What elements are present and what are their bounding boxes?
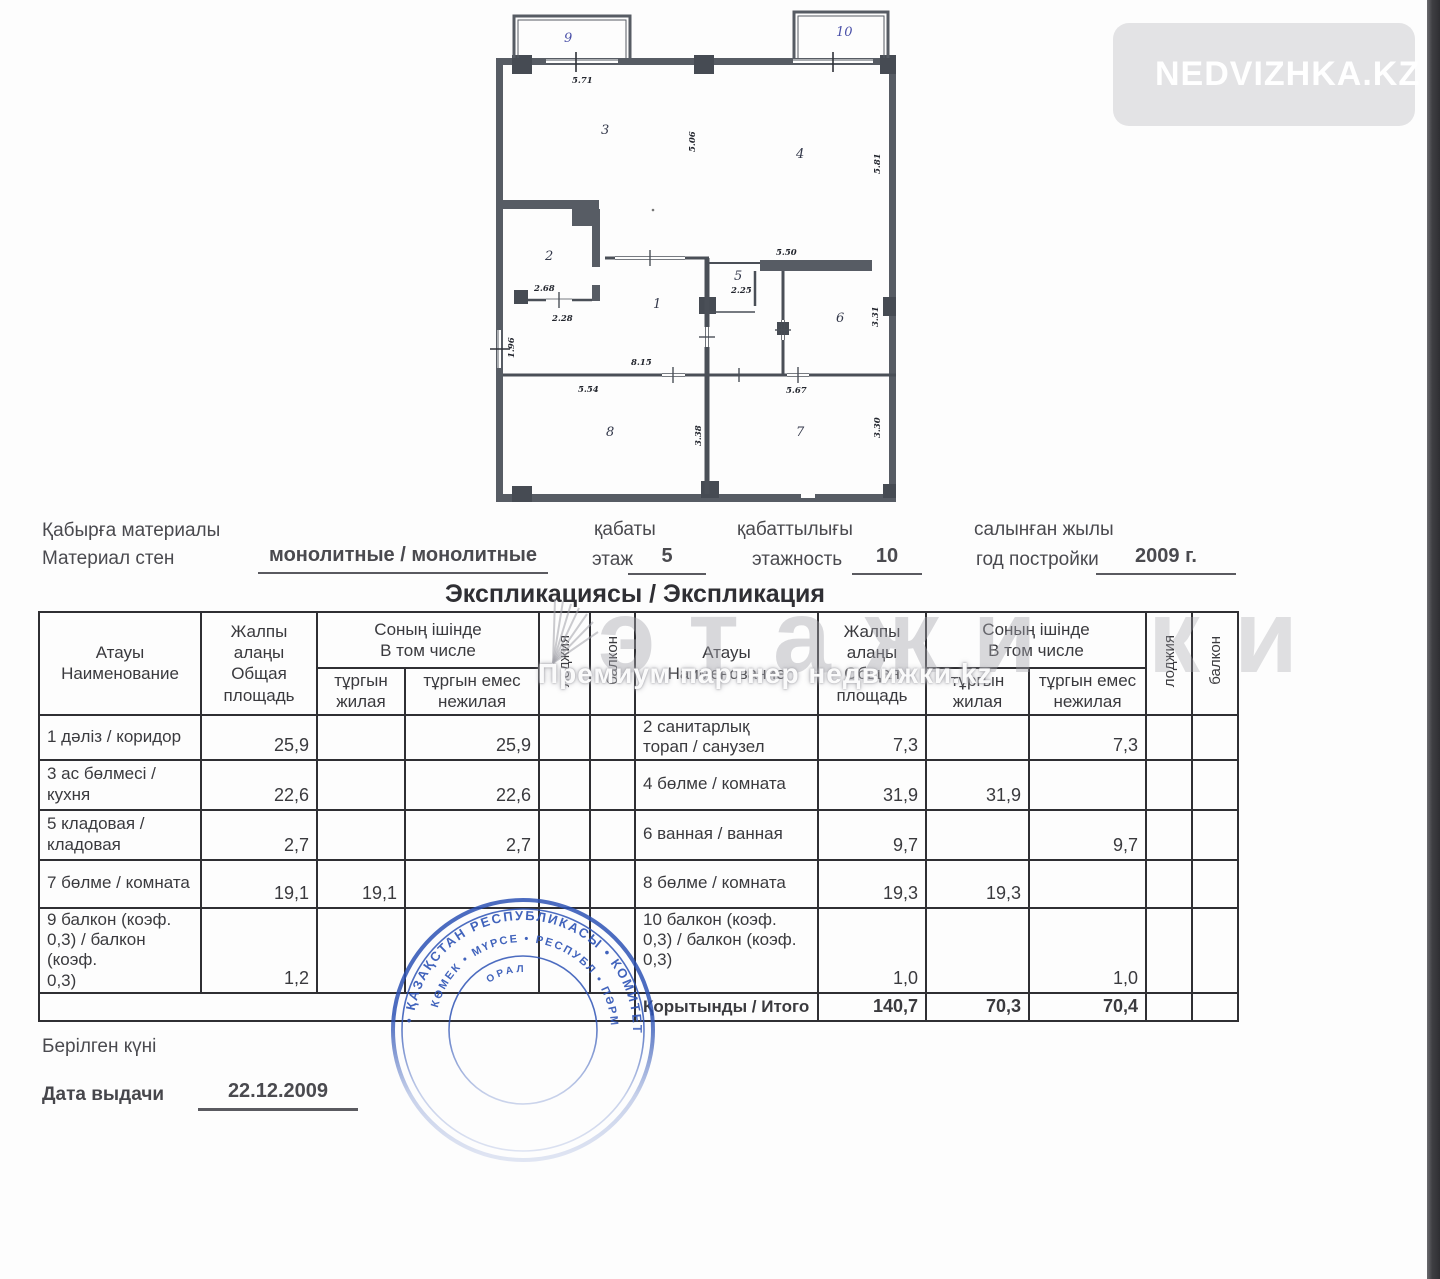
dim-5-81: 5.81 bbox=[873, 153, 883, 174]
floor-label-kk: қабаты bbox=[594, 519, 656, 541]
col-header-nonliving-right: тұргын емес нежилая bbox=[1029, 668, 1146, 715]
issue-date-label-kk: Берілген күні bbox=[42, 1036, 156, 1058]
logo-text: NEDVIZHKA.KZ bbox=[1155, 55, 1420, 94]
floor-value: 5 bbox=[628, 545, 706, 575]
col-header-loggia-left: лоджия bbox=[539, 612, 590, 715]
room-label-8: 8 bbox=[606, 425, 614, 440]
wall-material-value: монолитные / монолитные bbox=[258, 544, 548, 574]
interior-walls bbox=[503, 250, 896, 494]
room-label-5: 5 bbox=[734, 269, 742, 284]
floor-plan: 9 10 3 4 2 1 5 6 8 7 5.71 5.06 5.81 5.50… bbox=[488, 2, 908, 514]
dim-2-28: 2.28 bbox=[551, 314, 573, 324]
dim-1-96: 1.96 bbox=[507, 337, 517, 358]
photo-edge-strip bbox=[1427, 0, 1440, 1279]
col-header-total-right: Жалпы алаңы Общая площадь bbox=[818, 612, 926, 715]
col-header-name-left: Атауы Наименование bbox=[39, 612, 201, 715]
dim-5-06: 5.06 bbox=[688, 131, 698, 152]
storeys-label-kk: қабаттылығы bbox=[737, 519, 853, 541]
room-label-2: 2 bbox=[544, 249, 553, 264]
col-header-balcony-left: балкон bbox=[590, 612, 635, 715]
wall-material-label-ru: Материал стен bbox=[42, 548, 174, 570]
room-label-3: 3 bbox=[601, 123, 609, 138]
room-label-7: 7 bbox=[796, 425, 805, 440]
year-label-kk: салынған жылы bbox=[974, 519, 1114, 541]
storeys-value: 10 bbox=[852, 545, 922, 575]
col-header-name-right: Атауы Наименование bbox=[635, 612, 818, 715]
floor-label-ru: этаж bbox=[592, 549, 633, 571]
col-header-living-right: тұргын жилая bbox=[926, 668, 1029, 715]
windows bbox=[490, 52, 873, 368]
total-row: Қорытынды / Итого 140,7 70,3 70,4 bbox=[39, 993, 1238, 1021]
document-page: NEDVIZHKA.KZ bbox=[0, 0, 1440, 1279]
dim-2-25: 2.25 bbox=[730, 286, 752, 296]
table-row: 5 кладовая / кладовая 2,7 2,7 6 ванная /… bbox=[39, 810, 1238, 860]
table-row: 3 ас бөлмесі / кухня 22,6 22,6 4 бөлме /… bbox=[39, 760, 1238, 810]
dim-3-38: 3.38 bbox=[694, 425, 704, 446]
room-label-9: 9 bbox=[564, 31, 572, 46]
wall-posts bbox=[512, 55, 896, 502]
col-header-nonliving-left: тұргын емес нежилая bbox=[405, 668, 539, 715]
table-row: 1 дәліз / коридор 25,9 25,9 2 санитарлық… bbox=[39, 715, 1238, 760]
room-label-4: 4 bbox=[795, 147, 804, 162]
year-value: 2009 г. bbox=[1096, 545, 1236, 575]
room-label-6: 6 bbox=[836, 311, 844, 326]
dim-5-54: 5.54 bbox=[578, 385, 599, 395]
room-labels: 9 10 3 4 2 1 5 6 8 7 bbox=[544, 25, 853, 440]
col-header-including-left: Соның ішінде В том числе bbox=[317, 612, 539, 668]
dim-3-31: 3.31 bbox=[871, 306, 881, 327]
dim-8-15: 8.15 bbox=[631, 358, 652, 368]
issue-date-value: 22.12.2009 bbox=[198, 1080, 358, 1111]
wall-material-label-kk: Қабырға материалы bbox=[42, 520, 220, 542]
bottom-wall-gap bbox=[801, 494, 815, 498]
table-row: 7 бөлме / комната 19,1 19,1 8 бөлме / ко… bbox=[39, 860, 1238, 908]
explication-table: Атауы Наименование Жалпы алаңы Общая пло… bbox=[38, 611, 1239, 1022]
nedvizhka-logo-badge: NEDVIZHKA.KZ bbox=[1113, 23, 1415, 126]
col-header-balcony-right: балкон bbox=[1192, 612, 1238, 715]
dim-5-50: 5.50 bbox=[776, 248, 797, 258]
issue-date-label-ru: Дата выдачи bbox=[42, 1084, 164, 1106]
stray-mark bbox=[652, 209, 655, 212]
room-label-1: 1 bbox=[653, 297, 661, 312]
room-label-10: 10 bbox=[836, 25, 853, 40]
dim-5-67: 5.67 bbox=[786, 386, 807, 396]
col-header-total-left: Жалпы алаңы Общая площадь bbox=[201, 612, 317, 715]
dim-2-68: 2.68 bbox=[533, 284, 555, 294]
storeys-label-ru: этажность bbox=[752, 549, 842, 571]
col-header-loggia-right: лоджия bbox=[1146, 612, 1192, 715]
table-row: 9 балкон (коэф. 0,3) / балкон (коэф. 0,3… bbox=[39, 908, 1238, 994]
dim-3-30: 3.30 bbox=[873, 417, 883, 438]
table-title: Экспликациясы / Экспликация bbox=[415, 580, 855, 609]
col-header-living-left: тұргын жилая bbox=[317, 668, 405, 715]
col-header-including-right: Соның ішінде В том числе bbox=[926, 612, 1146, 668]
dim-5-71: 5.71 bbox=[572, 76, 593, 86]
year-label-ru: год постройки bbox=[976, 549, 1099, 571]
